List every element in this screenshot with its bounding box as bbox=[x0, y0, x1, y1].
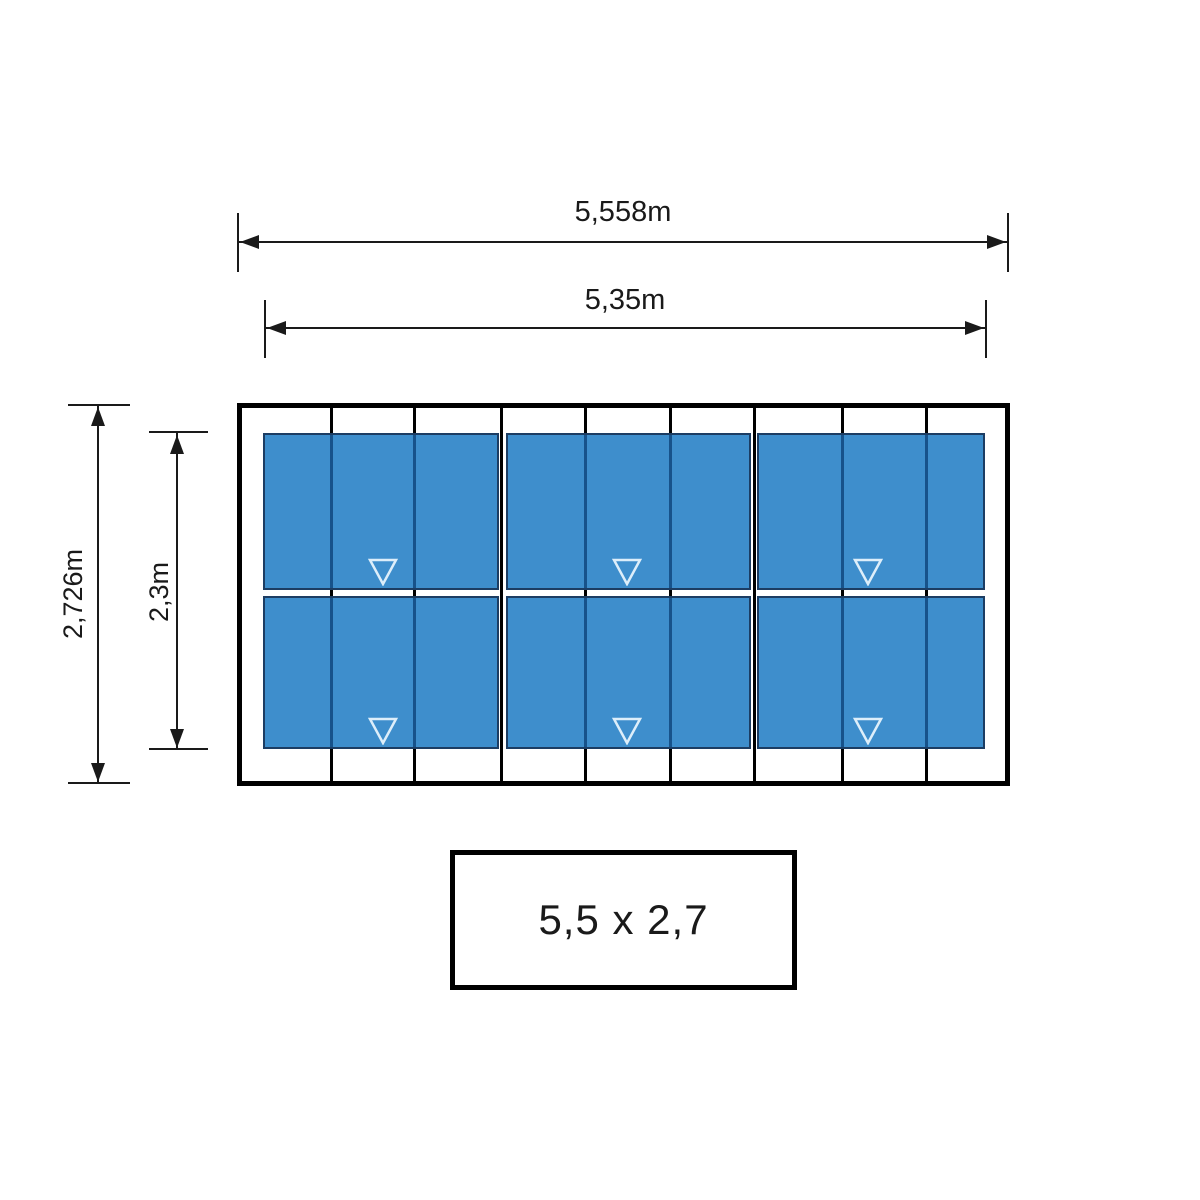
dimension-line bbox=[265, 327, 986, 329]
rafter-line bbox=[753, 406, 756, 783]
triangle-down-icon bbox=[367, 717, 399, 745]
triangle-down-icon bbox=[852, 717, 884, 745]
size-caption-box: 5,5 x 2,7 bbox=[450, 850, 797, 990]
extension-tick bbox=[68, 404, 130, 406]
extension-tick bbox=[68, 782, 130, 784]
extension-tick bbox=[985, 300, 987, 358]
extension-tick bbox=[149, 431, 208, 433]
panel-seam-line bbox=[584, 435, 587, 588]
size-caption-label: 5,5 x 2,7 bbox=[538, 896, 708, 944]
dimension-overall-depth-label: 2,726m bbox=[57, 524, 89, 664]
solar-panel bbox=[506, 433, 751, 590]
arrow-left-icon bbox=[240, 235, 259, 249]
extension-tick bbox=[264, 300, 266, 358]
panel-seam-line bbox=[330, 598, 333, 747]
panel-seam-line bbox=[669, 598, 672, 747]
arrow-right-icon bbox=[987, 235, 1006, 249]
extension-tick bbox=[1007, 213, 1009, 272]
solar-panel bbox=[263, 596, 499, 749]
panel-seam-line bbox=[584, 598, 587, 747]
solar-panel bbox=[506, 596, 751, 749]
panel-seam-line bbox=[669, 435, 672, 588]
dimension-panel-area-width-label: 5,35m bbox=[290, 284, 960, 317]
triangle-down-icon bbox=[611, 717, 643, 745]
dimension-line bbox=[238, 241, 1008, 243]
triangle-down-icon bbox=[611, 558, 643, 586]
panel-seam-line bbox=[413, 435, 416, 588]
triangle-down-icon bbox=[367, 558, 399, 586]
panel-seam-line bbox=[330, 435, 333, 588]
panel-seam-line bbox=[841, 598, 844, 747]
arrow-left-icon bbox=[267, 321, 286, 335]
panel-seam-line bbox=[925, 435, 928, 588]
solar-panel bbox=[757, 433, 985, 590]
arrow-down-icon bbox=[170, 729, 184, 748]
solar-panel bbox=[263, 433, 499, 590]
panel-seam-line bbox=[413, 598, 416, 747]
extension-tick bbox=[149, 748, 208, 750]
dimension-line bbox=[97, 405, 99, 784]
solar-panel bbox=[757, 596, 985, 749]
panel-seam-line bbox=[841, 435, 844, 588]
dimension-panel-area-depth-label: 2,3m bbox=[144, 532, 174, 652]
extension-tick bbox=[237, 213, 239, 272]
arrow-up-icon bbox=[91, 407, 105, 426]
panel-seam-line bbox=[925, 598, 928, 747]
arrow-right-icon bbox=[965, 321, 984, 335]
rafter-line bbox=[500, 406, 503, 783]
arrow-down-icon bbox=[91, 763, 105, 782]
triangle-down-icon bbox=[852, 558, 884, 586]
dimension-line bbox=[176, 433, 178, 750]
dimension-overall-width-label: 5,558m bbox=[268, 196, 978, 229]
arrow-up-icon bbox=[170, 435, 184, 454]
technical-drawing-canvas: 5,558m 5,35m 2,726m 2,3m 5,5 x 2,7 bbox=[0, 0, 1200, 1200]
